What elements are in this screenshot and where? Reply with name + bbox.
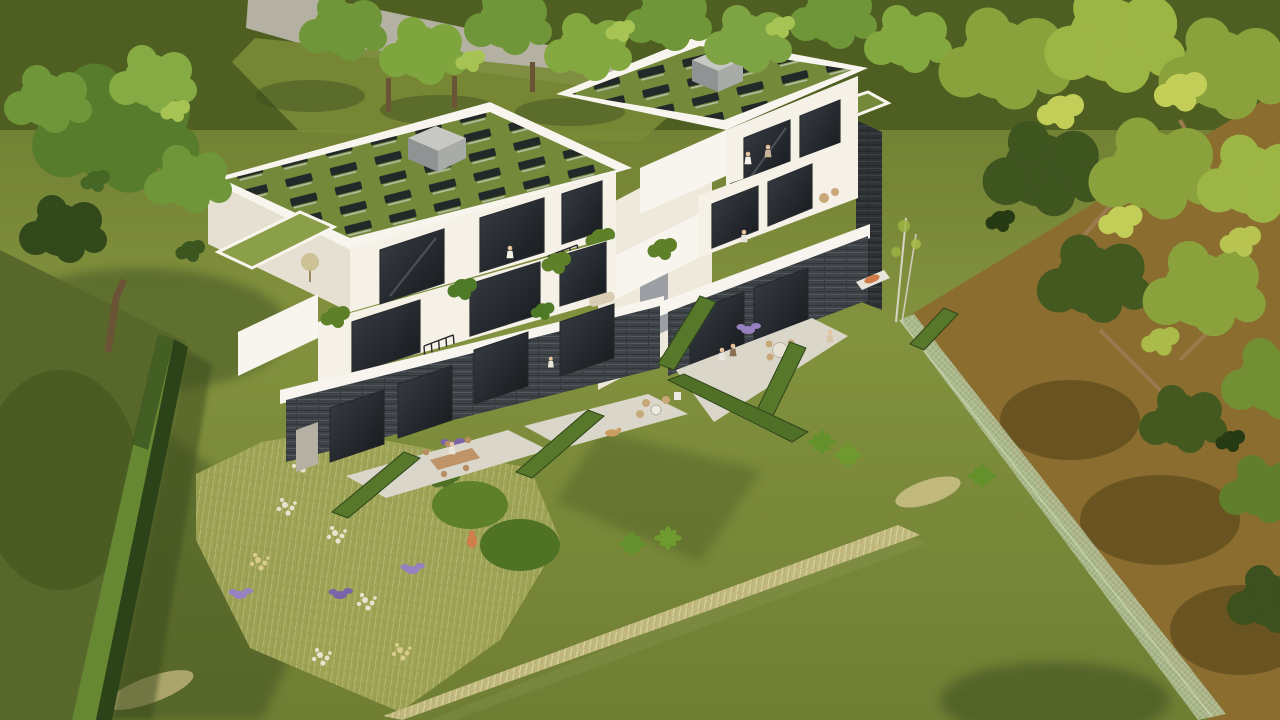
- planter-pot: [674, 392, 681, 400]
- chair: [441, 471, 447, 477]
- rattan-chair: [642, 399, 650, 407]
- rattan-chair: [831, 188, 839, 196]
- canopy-shadow: [1080, 475, 1240, 565]
- chair: [465, 437, 471, 443]
- chair: [766, 341, 773, 348]
- meadow-shrub: [432, 481, 508, 529]
- birch-leaves: [891, 247, 901, 257]
- chair: [423, 449, 429, 455]
- cat-body: [467, 534, 477, 548]
- chair: [463, 465, 469, 471]
- shrub-crown: [301, 253, 319, 271]
- birch-leaves: [911, 239, 921, 249]
- meadow-shrub: [480, 519, 560, 571]
- rattan-chair: [636, 410, 644, 418]
- tree-trunk: [386, 78, 391, 112]
- cat-head: [469, 530, 475, 536]
- rattan-chair: [662, 396, 670, 404]
- canopy-shadow: [1000, 380, 1140, 460]
- rattan-chair: [819, 193, 829, 203]
- aerial-render: [0, 0, 1280, 720]
- tree-shadow: [255, 80, 365, 112]
- round-table: [651, 405, 661, 415]
- tree-trunk: [530, 62, 535, 92]
- chair: [767, 354, 774, 361]
- tree-trunk: [452, 76, 457, 108]
- render-viewport: [0, 0, 1280, 720]
- birch-leaves: [898, 220, 910, 232]
- dog-head: [617, 428, 622, 433]
- garage-door: [296, 422, 318, 472]
